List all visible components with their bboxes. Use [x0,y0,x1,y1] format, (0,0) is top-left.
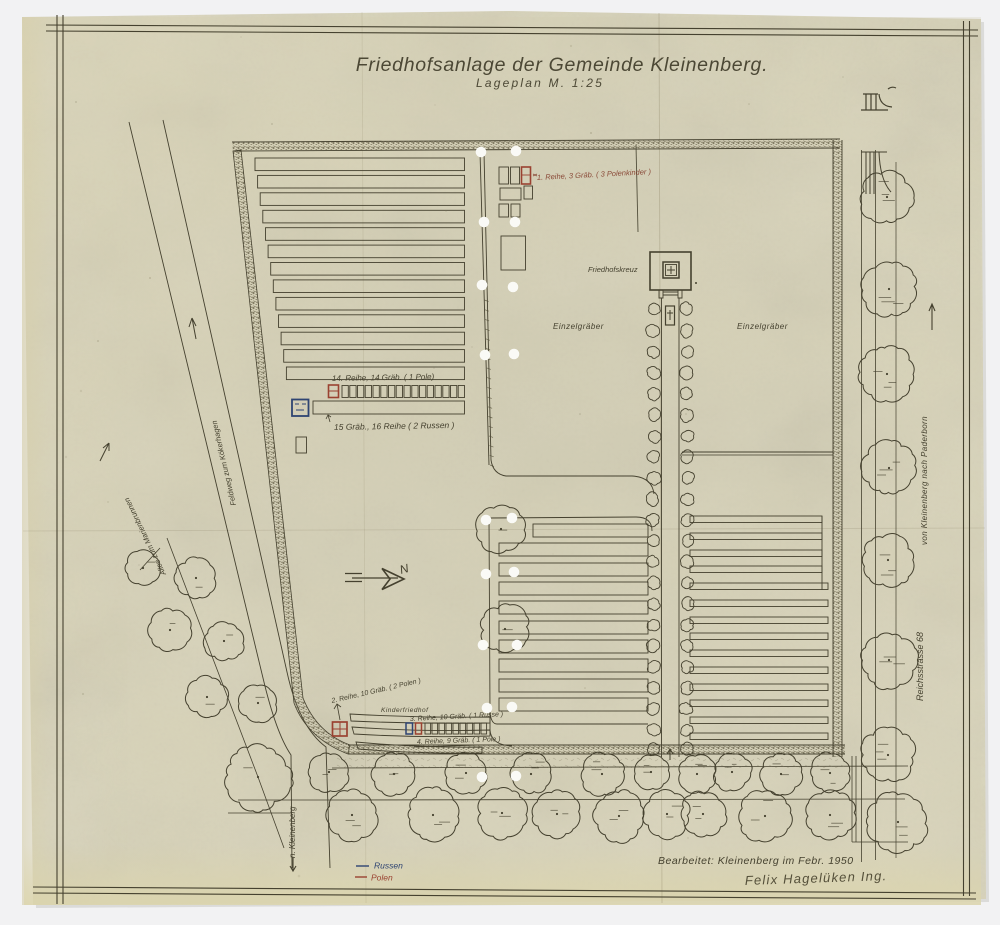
svg-text:von Kleinenberg nach Paderborn: von Kleinenberg nach Paderborn [920,416,929,545]
svg-text:Polen: Polen [371,873,393,883]
svg-text:Einzelgräber: Einzelgräber [553,322,604,331]
svg-text:Kinderfriedhof: Kinderfriedhof [381,707,429,714]
svg-text:14. Reihe, 14 Gräb. ( 1 Pole): 14. Reihe, 14 Gräb. ( 1 Pole) [332,372,435,383]
svg-text:n. Kleinenberg: n. Kleinenberg [288,806,297,858]
svg-text:Lageplan M. 1:25: Lageplan M. 1:25 [476,76,604,90]
svg-text:Bearbeitet: Kleinenberg im Fe: Bearbeitet: Kleinenberg im Febr. 1950 [658,855,854,867]
svg-text:Russen: Russen [374,861,403,871]
svg-text:15 Gräb., 16 Reihe ( 2 Russen: 15 Gräb., 16 Reihe ( 2 Russen ) [334,420,455,432]
svg-text:Reichsstrasse 68: Reichsstrasse 68 [915,632,925,701]
svg-text:Friedhofsanlage der Gemeinde K: Friedhofsanlage der Gemeinde Kleinenberg… [356,54,768,76]
svg-text:Einzelgräber: Einzelgräber [737,322,788,331]
svg-text:Friedhofskreuz: Friedhofskreuz [588,265,638,274]
